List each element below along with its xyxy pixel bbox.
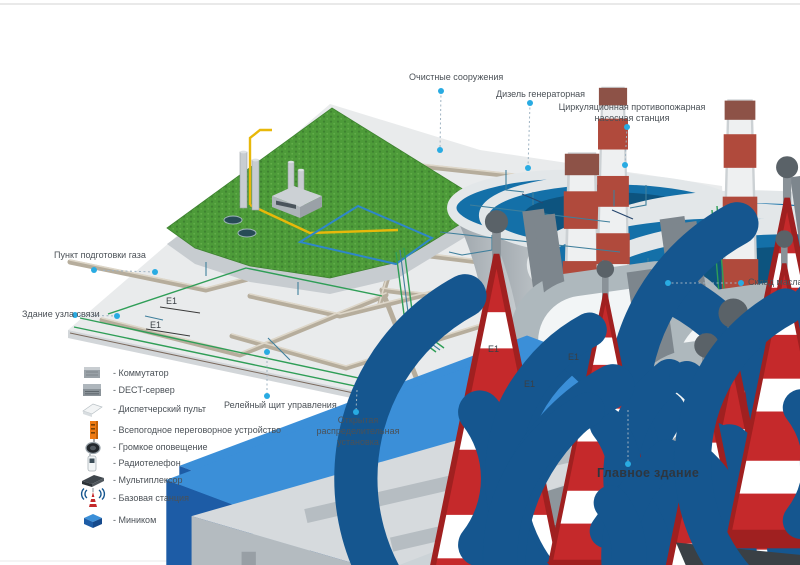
legend-item-label: - Коммутатор bbox=[113, 368, 169, 378]
legend-item: - Диспетчерский пульт bbox=[80, 399, 206, 419]
legend-item-label: - Всепогодное переговорное устройство bbox=[113, 425, 281, 435]
e1-label: E1 bbox=[150, 320, 161, 330]
legend-item: - DECT-сервер bbox=[80, 380, 175, 400]
legend-item-label: - Мультиплексор bbox=[113, 475, 183, 485]
legend-item: - Миником bbox=[80, 510, 156, 530]
legend-item-label: - Радиотелефон bbox=[113, 458, 181, 468]
legend-item-label: - DECT-сервер bbox=[113, 385, 175, 395]
label-diesel: Дизель генераторная bbox=[496, 89, 585, 100]
label-treatment: Очистные сооружения bbox=[409, 72, 503, 83]
e1-label: E1 bbox=[488, 344, 499, 354]
e1-label: E1 bbox=[166, 296, 177, 306]
settling-pond bbox=[224, 216, 242, 224]
settling-pond bbox=[238, 229, 256, 237]
label-gas-prep: Пункт подготовки газа bbox=[54, 250, 146, 261]
facility-diagram: Пункт подготовки газа Здание узла связи … bbox=[0, 0, 800, 565]
label-circulation: Циркуляционная противопожарная насосная … bbox=[548, 102, 716, 124]
label-oil-storage: Склад масла bbox=[748, 277, 800, 288]
dispatcher-console-icon bbox=[80, 399, 106, 419]
label-circulation-line2: насосная станция bbox=[548, 113, 716, 124]
legend-item-label: - Громкое оповещение bbox=[113, 442, 208, 452]
label-comm-node: Здание узла связи bbox=[22, 309, 100, 320]
minicom-icon bbox=[80, 510, 106, 530]
legend-item: - Базовая станция bbox=[80, 486, 189, 510]
label-switchgear-line1: Открытая распределительная bbox=[296, 415, 420, 437]
legend-item-label: - Базовая станция bbox=[113, 493, 189, 503]
label-switchgear: Открытая распределительная установка bbox=[296, 415, 420, 448]
e1-label: E1 bbox=[568, 352, 579, 362]
legend-item-label: - Миником bbox=[113, 515, 156, 525]
label-main-building: Главное здание bbox=[597, 468, 699, 479]
legend-item-label: - Диспетчерский пульт bbox=[113, 404, 206, 414]
dect-server-icon bbox=[80, 380, 106, 400]
e1-label: E1 bbox=[524, 379, 535, 389]
label-relay-panel: Релейный щит управления bbox=[224, 400, 337, 411]
base-station-icon bbox=[80, 486, 106, 510]
label-circulation-line1: Циркуляционная противопожарная bbox=[548, 102, 716, 113]
label-switchgear-line2: установка bbox=[296, 437, 420, 448]
